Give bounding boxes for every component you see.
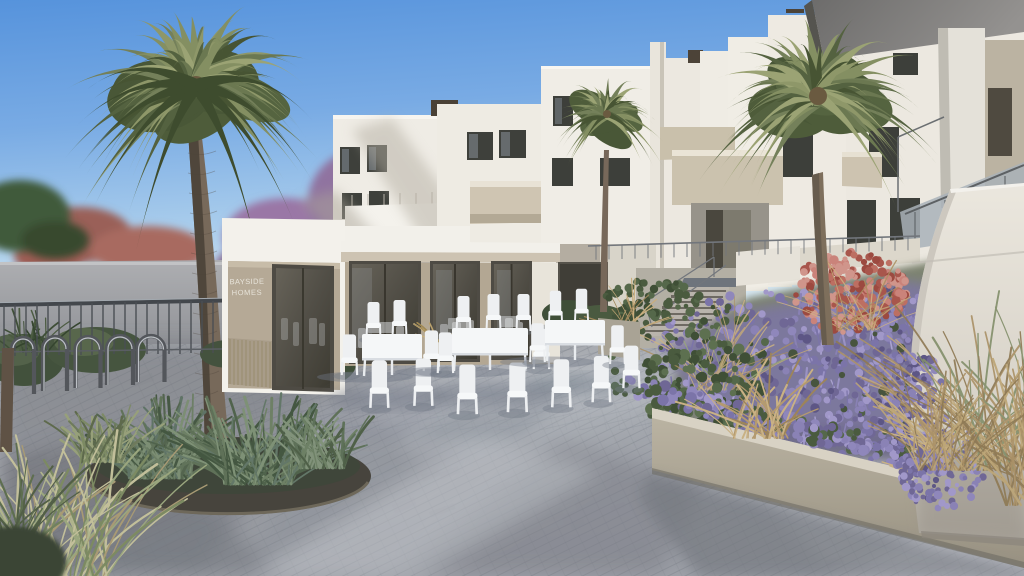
svg-text:HOMES: HOMES	[232, 288, 263, 298]
svg-text:BAYSIDE: BAYSIDE	[229, 277, 264, 287]
